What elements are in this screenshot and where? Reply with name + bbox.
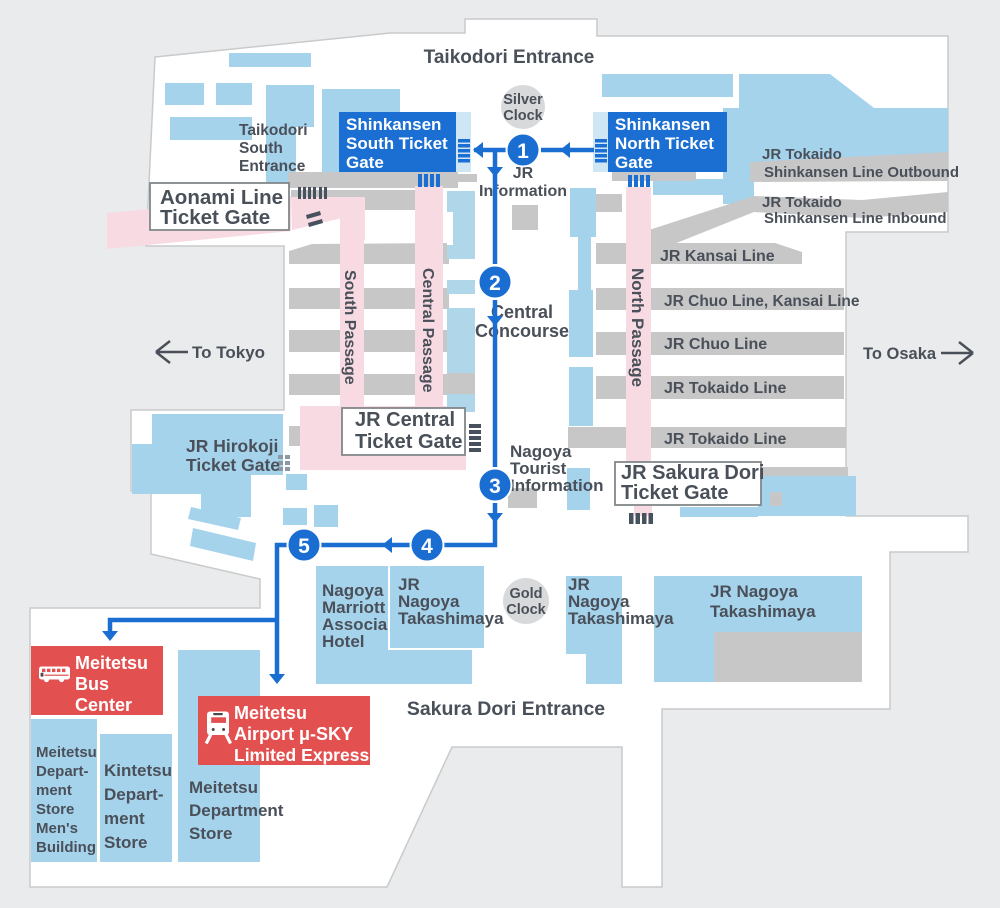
- svg-text:Meitetsu: Meitetsu: [234, 703, 307, 723]
- svg-text:Meitetsu: Meitetsu: [75, 653, 148, 673]
- svg-text:Takashimaya: Takashimaya: [710, 602, 816, 621]
- svg-text:Meitetsu: Meitetsu: [36, 744, 97, 761]
- svg-text:JR Chuo Line: JR Chuo Line: [664, 336, 767, 353]
- svg-text:JR Nagoya: JR Nagoya: [710, 582, 798, 601]
- svg-text:JR Hirokoji: JR Hirokoji: [186, 436, 278, 456]
- svg-text:Depart-: Depart-: [104, 785, 164, 804]
- svg-text:To Tokyo: To Tokyo: [192, 343, 265, 362]
- svg-text:JR Tokaido: JR Tokaido: [762, 194, 842, 211]
- svg-text:Kintetsu: Kintetsu: [104, 761, 172, 780]
- svg-text:Center: Center: [75, 695, 132, 715]
- svg-text:Airport μ-SKY: Airport μ-SKY: [234, 724, 353, 744]
- svg-text:Gate: Gate: [615, 153, 653, 172]
- svg-text:Taikodori: Taikodori: [239, 122, 308, 139]
- svg-text:Men's: Men's: [36, 820, 78, 837]
- svg-text:Depart-: Depart-: [36, 763, 89, 780]
- svg-text:Sakura Dori Entrance: Sakura Dori Entrance: [407, 698, 605, 720]
- svg-text:JR Sakura Dori: JR Sakura Dori: [621, 462, 764, 484]
- svg-text:South: South: [239, 140, 283, 157]
- svg-text:Ticket Gate: Ticket Gate: [160, 206, 270, 229]
- svg-text:Ticket Gate: Ticket Gate: [621, 482, 728, 504]
- svg-text:Hotel: Hotel: [322, 632, 365, 651]
- svg-text:Takashimaya: Takashimaya: [398, 609, 504, 628]
- svg-text:South Ticket: South Ticket: [346, 134, 448, 153]
- svg-text:ment: ment: [36, 782, 72, 799]
- svg-text:Bus: Bus: [75, 674, 109, 694]
- svg-text:Entrance: Entrance: [239, 158, 306, 175]
- svg-text:JR Central: JR Central: [355, 409, 455, 431]
- svg-text:Meitetsu: Meitetsu: [189, 778, 258, 797]
- svg-text:ment: ment: [104, 809, 145, 828]
- svg-text:4: 4: [421, 535, 433, 558]
- svg-text:2: 2: [489, 272, 501, 295]
- svg-text:Clock: Clock: [506, 602, 546, 618]
- svg-text:Limited Express: Limited Express: [234, 745, 369, 765]
- svg-text:Store: Store: [189, 824, 232, 843]
- svg-text:Clock: Clock: [503, 108, 543, 124]
- svg-text:North Passage: North Passage: [628, 268, 647, 387]
- svg-text:Takashimaya: Takashimaya: [568, 609, 674, 628]
- svg-text:Taikodori Entrance: Taikodori Entrance: [424, 47, 595, 68]
- svg-text:Store: Store: [104, 833, 147, 852]
- svg-text:3: 3: [489, 475, 501, 498]
- svg-text:Building: Building: [36, 839, 96, 856]
- svg-text:Silver: Silver: [503, 92, 543, 108]
- svg-text:JR: JR: [513, 165, 534, 182]
- svg-text:Ticket Gate: Ticket Gate: [186, 455, 280, 475]
- svg-text:To Osaka: To Osaka: [863, 345, 937, 363]
- svg-text:JR Kansai Line: JR Kansai Line: [660, 248, 775, 265]
- svg-text:JR Tokaido: JR Tokaido: [762, 146, 842, 163]
- svg-text:Concourse: Concourse: [475, 321, 569, 341]
- svg-text:Gold: Gold: [509, 586, 542, 602]
- svg-text:Shinkansen Line Inbound: Shinkansen Line Inbound: [764, 210, 947, 227]
- svg-text:Information: Information: [510, 476, 604, 495]
- svg-text:Central Passage: Central Passage: [419, 268, 436, 393]
- svg-text:Store: Store: [36, 801, 74, 818]
- svg-text:1: 1: [517, 140, 529, 163]
- svg-text:Shinkansen: Shinkansen: [615, 115, 710, 134]
- svg-text:Department: Department: [189, 801, 284, 820]
- svg-text:North Ticket: North Ticket: [615, 134, 714, 153]
- svg-text:Shinkansen: Shinkansen: [346, 115, 441, 134]
- svg-text:Shinkansen Line Outbound: Shinkansen Line Outbound: [764, 164, 959, 181]
- svg-text:South Passage: South Passage: [341, 270, 358, 385]
- svg-text:5: 5: [298, 535, 310, 558]
- svg-text:Information: Information: [479, 183, 567, 200]
- svg-text:JR Chuo Line, Kansai Line: JR Chuo Line, Kansai Line: [664, 293, 860, 310]
- svg-text:JR Tokaido Line: JR Tokaido Line: [664, 380, 786, 397]
- svg-text:Gate: Gate: [346, 153, 384, 172]
- svg-text:JR Tokaido Line: JR Tokaido Line: [664, 431, 786, 448]
- svg-text:Ticket Gate: Ticket Gate: [355, 431, 462, 453]
